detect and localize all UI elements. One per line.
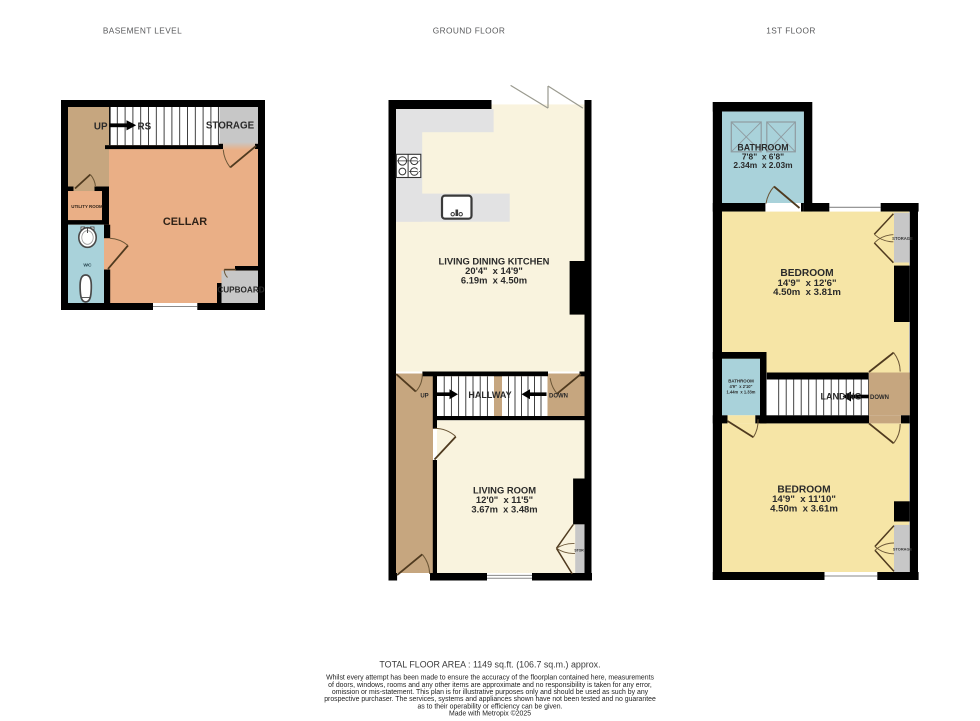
svg-text:LANDING: LANDING — [821, 392, 862, 402]
svg-text:prospective purchaser. The ser: prospective purchaser. The services, sys… — [324, 696, 656, 703]
svg-text:3.67m x 3.48m: 3.67m x 3.48m — [471, 503, 537, 514]
svg-text:of doors, windows, rooms and a: of doors, windows, rooms and any other i… — [328, 682, 652, 689]
svg-text:Whilst every attempt has been: Whilst every attempt has been made to en… — [326, 675, 654, 682]
svg-text:STORAGE: STORAGE — [892, 236, 913, 241]
svg-text:2.34m x 2.03m: 2.34m x 2.03m — [733, 160, 792, 170]
svg-text:GROUND FLOOR: GROUND FLOOR — [433, 26, 506, 36]
svg-text:UP: UP — [420, 393, 428, 399]
svg-text:4.50m x 3.61m: 4.50m x 3.61m — [770, 503, 838, 514]
svg-text:DOWN: DOWN — [549, 393, 568, 399]
svg-text:STOR: STOR — [574, 549, 584, 553]
svg-text:UP: UP — [94, 121, 108, 132]
svg-text:6.19m x 4.50m: 6.19m x 4.50m — [461, 275, 527, 286]
svg-text:STORAGE: STORAGE — [206, 121, 255, 132]
svg-text:DOWN: DOWN — [870, 395, 889, 401]
svg-text:4.50m x 3.81m: 4.50m x 3.81m — [773, 287, 841, 298]
svg-text:1ST FLOOR: 1ST FLOOR — [766, 26, 816, 36]
svg-text:1.44m x 1.33m: 1.44m x 1.33m — [727, 389, 756, 394]
svg-text:BATHROOM: BATHROOM — [728, 379, 754, 384]
svg-text:CUPBOARD: CUPBOARD — [217, 286, 264, 295]
svg-text:Made with Metropix ©2025: Made with Metropix ©2025 — [449, 710, 531, 718]
svg-text:UTILITY ROOM: UTILITY ROOM — [71, 204, 103, 209]
svg-text:as to their operability or eff: as to their operability or efficiency ca… — [417, 703, 562, 710]
svg-text:RS: RS — [138, 121, 152, 132]
svg-text:omission or mis-statement. Thi: omission or mis-statement. This plan is … — [332, 689, 649, 696]
svg-text:STORAGE: STORAGE — [893, 546, 913, 551]
svg-text:HALLWAY: HALLWAY — [468, 390, 511, 400]
svg-text:TOTAL FLOOR AREA : 1149 sq.ft.: TOTAL FLOOR AREA : 1149 sq.ft. (106.7 sq… — [379, 660, 600, 670]
svg-text:CELLAR: CELLAR — [163, 216, 207, 228]
svg-text:WC: WC — [83, 263, 92, 269]
svg-text:BASEMENT LEVEL: BASEMENT LEVEL — [103, 26, 182, 36]
